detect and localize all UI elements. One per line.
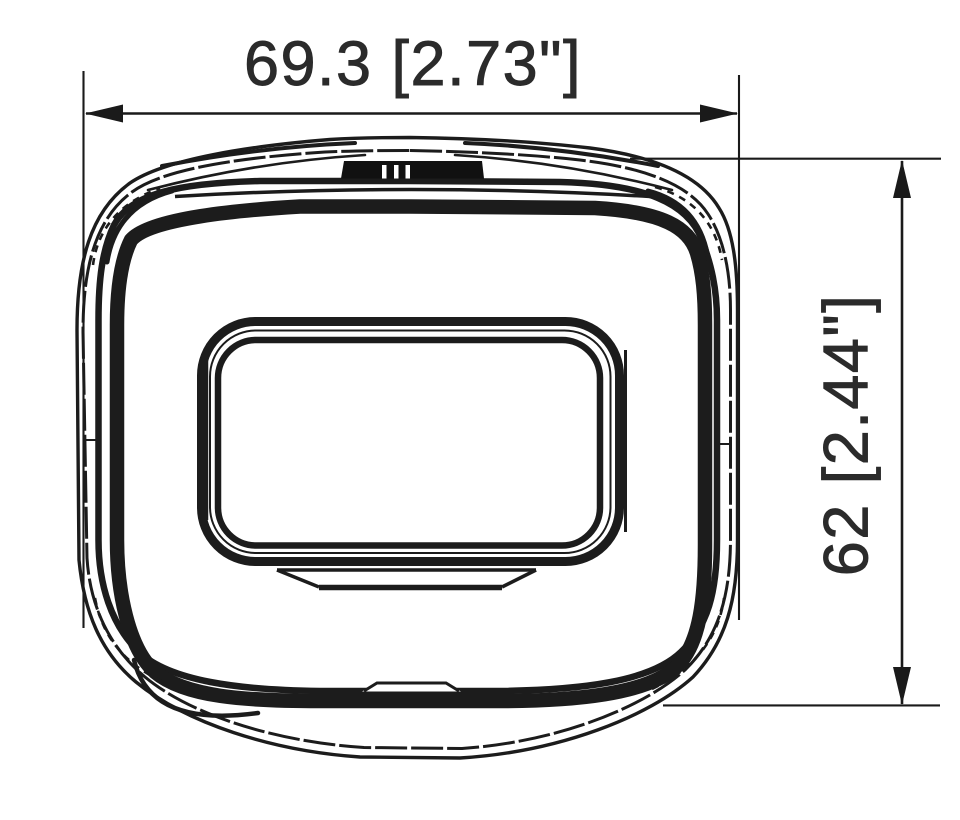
svg-text:62 [2.44"]: 62 [2.44"] bbox=[812, 294, 882, 577]
svg-text:69.3 [2.73"]: 69.3 [2.73"] bbox=[244, 29, 582, 99]
